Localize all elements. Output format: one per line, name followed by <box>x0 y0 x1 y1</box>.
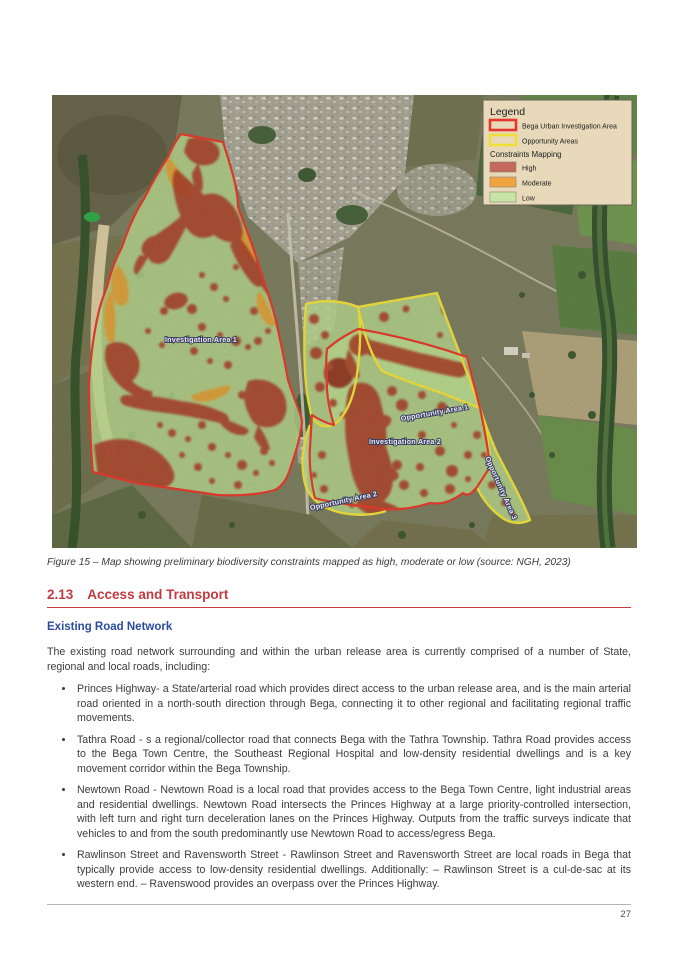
section-title: Access and Transport <box>87 587 228 602</box>
legend-swatch-opportunity-areas <box>490 135 516 145</box>
bullet-princes-highway: Princes Highway- a State/arterial road w… <box>75 682 631 726</box>
section-number: 2.13 <box>47 587 73 602</box>
figure-caption: Figure 15 – Map showing preliminary biod… <box>47 557 631 568</box>
legend-swatch-investigation-area <box>490 120 516 130</box>
legend-swatch-low <box>490 192 516 202</box>
legend-swatch-moderate <box>490 177 516 187</box>
legend-subtitle: Constraints Mapping <box>490 150 562 159</box>
sub-heading: Existing Road Network <box>47 621 631 633</box>
road-bullet-list: Princes Highway- a State/arterial road w… <box>47 682 631 892</box>
legend-label-moderate: Moderate <box>522 181 552 188</box>
biodiversity-constraints-map: Investigation Area 1 Opportunity Area 1 … <box>52 95 637 548</box>
legend-label-investigation-area: Bega Urban Investigation Area <box>522 124 617 131</box>
footer-divider <box>47 904 631 905</box>
legend-label-opportunity-areas: Opportunity Areas <box>522 139 579 146</box>
legend-swatch-high <box>490 162 516 172</box>
intro-paragraph: The existing road network surrounding an… <box>47 645 631 674</box>
legend-label-high: High <box>522 166 537 173</box>
legend-label-low: Low <box>522 196 536 203</box>
section-heading: 2.13Access and Transport <box>47 587 631 608</box>
investigation-area-1-label: Investigation Area 1 <box>165 335 237 344</box>
figure-map: Investigation Area 1 Opportunity Area 1 … <box>52 95 637 548</box>
investigation-area-2-label: Investigation Area 2 <box>369 437 441 446</box>
body-text: The existing road network surrounding an… <box>47 645 631 899</box>
bullet-tathra-road: Tathra Road - s a regional/collector roa… <box>75 733 631 777</box>
bullet-newtown-road: Newtown Road - Newtown Road is a local r… <box>75 783 631 841</box>
map-legend: Legend Bega Urban Investigation Area Opp… <box>483 100 632 205</box>
page-number: 27 <box>620 909 631 920</box>
legend-title: Legend <box>490 106 525 118</box>
bullet-rawlinson-ravensworth: Rawlinson Street and Ravensworth Street … <box>75 848 631 892</box>
